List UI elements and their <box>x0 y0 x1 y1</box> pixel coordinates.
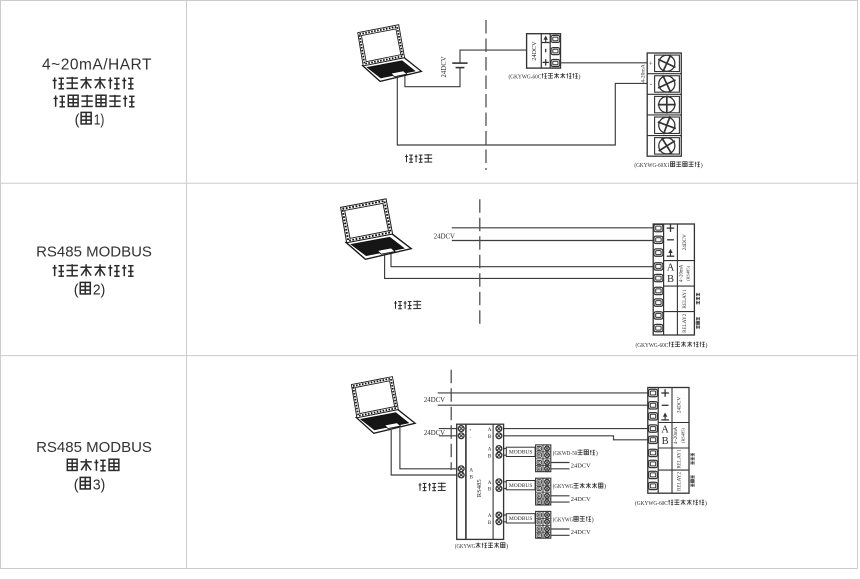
svg-text:A: A <box>488 513 492 519</box>
svg-text:RELAY1: RELAY1 <box>677 449 683 469</box>
svg-text:4~20mA/HART: 4~20mA/HART <box>42 57 152 74</box>
svg-text:24DCV: 24DCV <box>531 41 538 61</box>
svg-text:(GKYWG: (GKYWG <box>553 516 574 523</box>
svg-text:): ) <box>506 543 508 550</box>
svg-text:24DCV: 24DCV <box>571 496 591 503</box>
svg-text:B: B <box>488 487 492 493</box>
svg-text:): ) <box>578 73 580 80</box>
svg-text:24DCV: 24DCV <box>424 397 445 404</box>
svg-text:MODBUS: MODBUS <box>509 450 533 456</box>
svg-text:(: ( <box>75 112 80 128</box>
svg-text:3): 3) <box>93 477 105 493</box>
svg-text:(: ( <box>74 477 79 493</box>
svg-text:RS485 MODBUS: RS485 MODBUS <box>36 244 152 261</box>
svg-text:RELAY1: RELAY1 <box>682 289 688 309</box>
svg-text:RELAY2: RELAY2 <box>677 472 683 492</box>
svg-text:A: A <box>488 480 492 486</box>
svg-text:2): 2) <box>93 282 105 298</box>
svg-text:24DCV: 24DCV <box>682 234 688 250</box>
svg-text:A: A <box>488 447 492 453</box>
svg-text:(GKYWG: (GKYWG <box>455 543 476 550</box>
svg-text:): ) <box>604 483 606 490</box>
svg-text:1): 1) <box>94 112 105 128</box>
svg-text:A: A <box>488 427 492 433</box>
svg-text:): ) <box>701 162 703 169</box>
svg-text:): ) <box>705 342 707 349</box>
svg-text:4-20mA: 4-20mA <box>641 64 647 83</box>
svg-text:(RS485): (RS485) <box>686 265 691 280</box>
svg-text:): ) <box>596 450 598 457</box>
svg-text:(GKYWG-60C: (GKYWG-60C <box>509 73 542 80</box>
svg-text:24DCV: 24DCV <box>677 397 683 413</box>
svg-text:24DCV: 24DCV <box>571 529 591 536</box>
svg-text:24DCV: 24DCV <box>441 56 448 77</box>
svg-text:MODBUS: MODBUS <box>509 483 533 489</box>
svg-text:+: + <box>649 60 653 68</box>
svg-text:+: + <box>469 427 472 432</box>
svg-text:RS485 MODBUS: RS485 MODBUS <box>36 439 152 456</box>
svg-text:): ) <box>592 516 594 523</box>
svg-text:B: B <box>488 520 492 526</box>
svg-text:A: A <box>667 262 675 273</box>
svg-text:RS485: RS485 <box>476 479 483 498</box>
svg-text:4~20mA: 4~20mA <box>674 426 679 444</box>
svg-text:4~20mA: 4~20mA <box>679 264 684 282</box>
svg-text:(GKWD-50: (GKWD-50 <box>553 450 577 457</box>
svg-text:24DCV: 24DCV <box>424 430 445 437</box>
svg-text:B: B <box>662 436 669 447</box>
svg-text:(GKYWG-60X1: (GKYWG-60X1 <box>634 162 669 169</box>
svg-text:B: B <box>469 474 473 480</box>
svg-text:(GKYWG: (GKYWG <box>553 483 574 490</box>
svg-text:B: B <box>488 434 492 440</box>
svg-text:B: B <box>667 274 674 285</box>
svg-text:A: A <box>469 467 473 473</box>
svg-text:(: ( <box>74 282 79 298</box>
svg-text:): ) <box>705 500 707 507</box>
svg-text:24DCV: 24DCV <box>571 463 591 470</box>
svg-text:(GKYWG-60C: (GKYWG-60C <box>635 500 668 507</box>
svg-text:B: B <box>488 453 492 459</box>
svg-text:(GKYWG-60C: (GKYWG-60C <box>636 342 669 349</box>
svg-text:RELAY2: RELAY2 <box>682 313 688 333</box>
svg-text:(RS485): (RS485) <box>680 428 685 443</box>
svg-text:MODBUS: MODBUS <box>509 516 533 522</box>
svg-text:24DCV: 24DCV <box>434 234 455 241</box>
svg-text:A: A <box>661 425 669 436</box>
